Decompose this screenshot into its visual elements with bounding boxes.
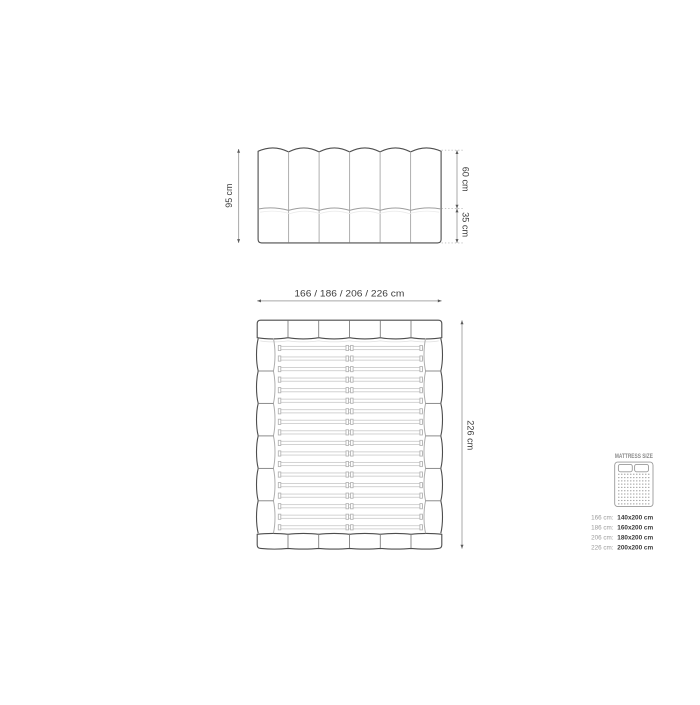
svg-text:186 cm:: 186 cm: <box>591 525 614 532</box>
svg-text:95 cm: 95 cm <box>224 184 234 208</box>
svg-text:226 cm:: 226 cm: <box>591 545 614 552</box>
svg-text:226 cm: 226 cm <box>464 420 475 450</box>
svg-text:206 cm:: 206 cm: <box>591 535 614 542</box>
svg-text:140x200 cm: 140x200 cm <box>617 515 653 522</box>
svg-text:MATTRESS SIZE: MATTRESS SIZE <box>615 454 653 460</box>
svg-text:166 / 186 / 206 / 226 cm: 166 / 186 / 206 / 226 cm <box>294 288 404 299</box>
svg-text:180x200 cm: 180x200 cm <box>617 535 653 542</box>
svg-text:166 cm:: 166 cm: <box>591 515 614 522</box>
svg-text:160x200 cm: 160x200 cm <box>617 525 653 532</box>
svg-text:35 cm: 35 cm <box>461 212 471 237</box>
svg-text:60 cm: 60 cm <box>461 167 471 192</box>
svg-text:200x200 cm: 200x200 cm <box>617 545 653 552</box>
